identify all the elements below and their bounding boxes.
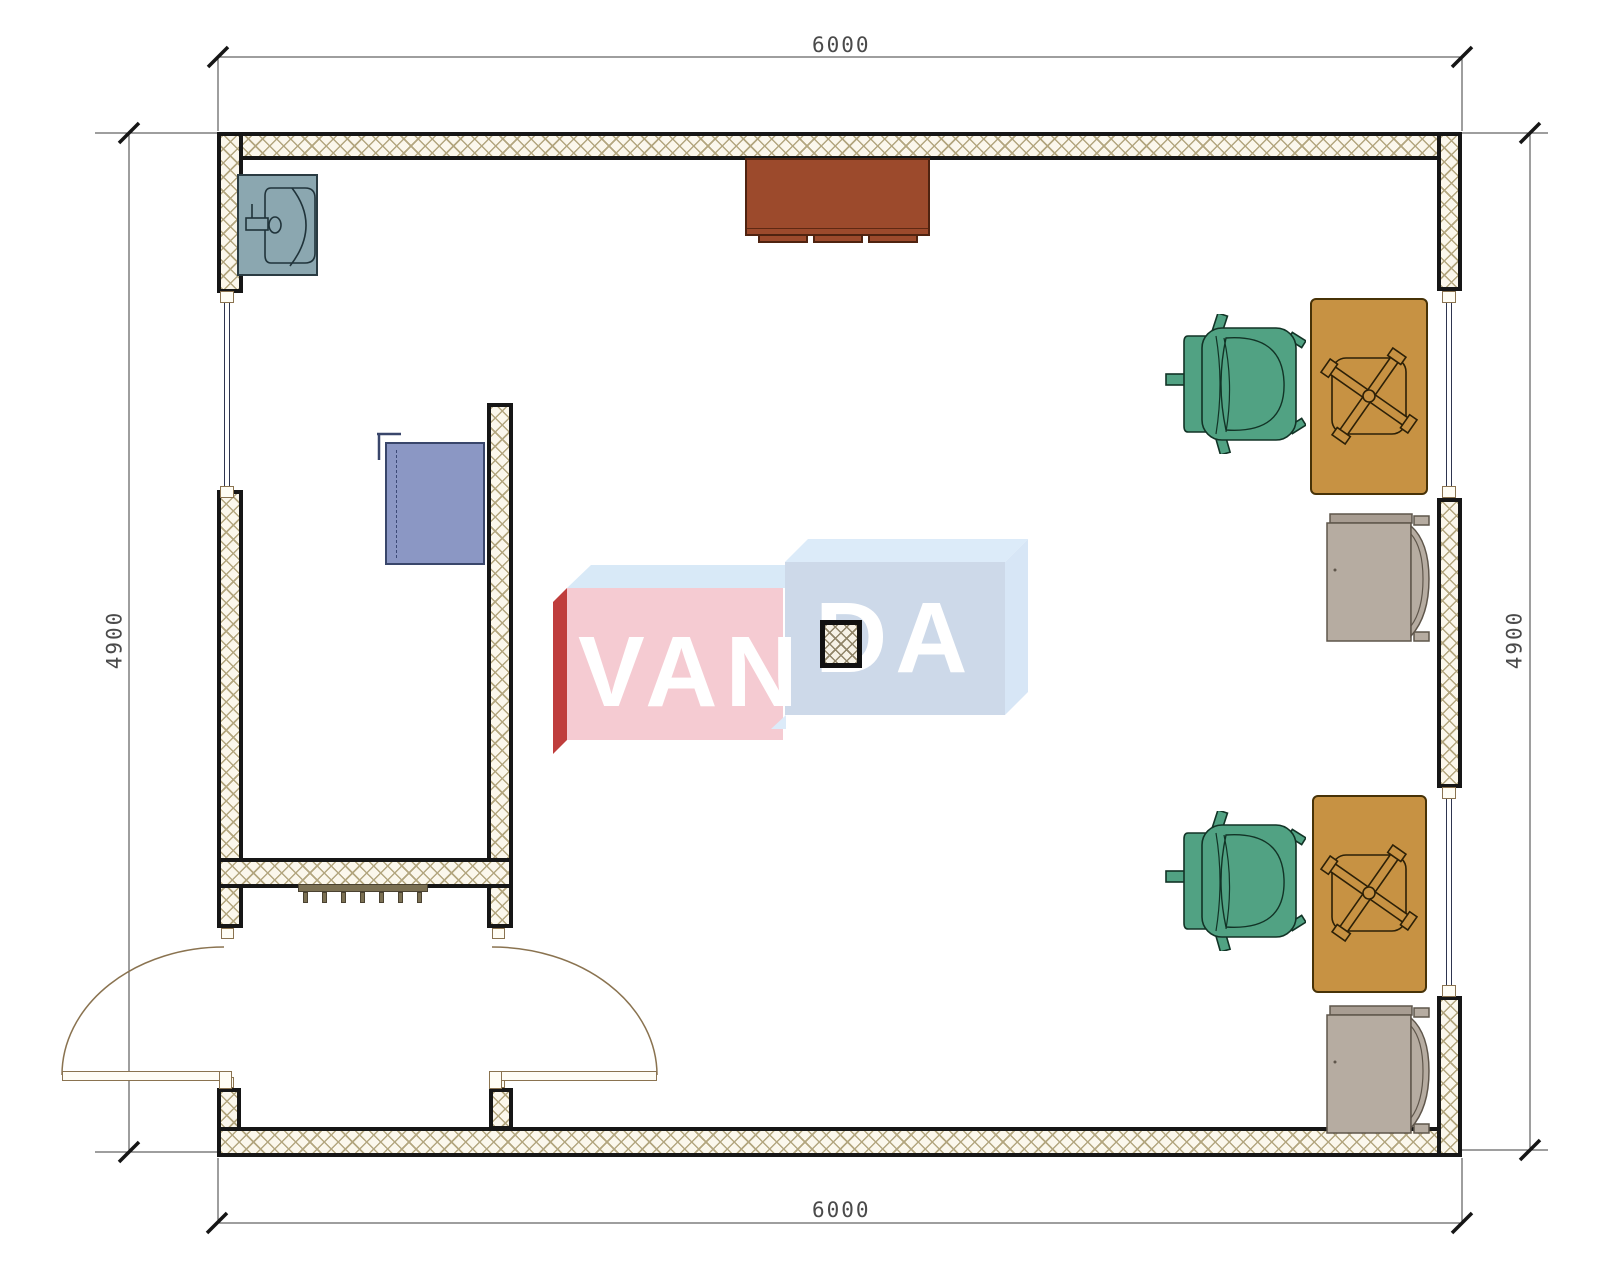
dimension-top: 6000	[812, 33, 871, 57]
side-chair-gray-bottom	[1326, 1004, 1430, 1138]
dimension-right: 4900	[1502, 611, 1526, 670]
cabinet-blue-dashed-line	[396, 450, 397, 558]
sink	[237, 174, 319, 277]
door-leaf-right	[489, 1071, 657, 1081]
window-frame-square	[1442, 985, 1456, 997]
door-frame-square	[492, 928, 505, 939]
door-leaf-left-hinge-step	[219, 1071, 232, 1089]
window-frame-square	[1442, 787, 1456, 799]
window-frame-square	[1442, 486, 1456, 498]
dimension-bottom: 6000	[812, 1198, 871, 1222]
door-leaf-right-hinge-step	[489, 1071, 502, 1089]
chair-cross-base-bottom	[1314, 838, 1424, 948]
window-frame-square	[220, 486, 234, 498]
column	[820, 620, 862, 668]
dimension-left: 4900	[102, 611, 126, 670]
window-frame-square	[1442, 291, 1456, 303]
chair-cross-base-top	[1314, 341, 1424, 451]
office-chair-green-bottom	[1164, 811, 1306, 951]
door-leaf-left	[62, 1071, 230, 1081]
floor-plan-canvas: VAN DA	[0, 0, 1600, 1280]
cabinet-blue-bracket	[374, 428, 406, 468]
office-chair-green-top	[1164, 314, 1306, 454]
door-swing-arcs	[62, 947, 657, 1075]
door-frame-square	[221, 928, 234, 939]
side-chair-gray-top	[1326, 512, 1430, 646]
window-frame-square	[220, 291, 234, 303]
